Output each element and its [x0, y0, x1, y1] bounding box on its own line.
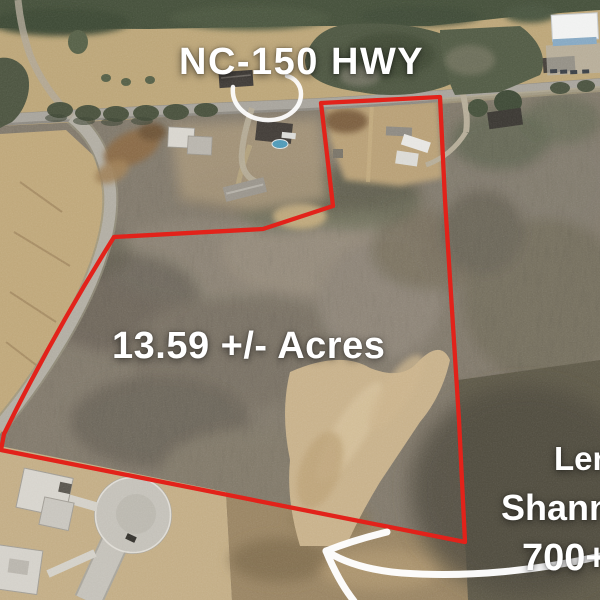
cutoff-label-2: Shanno — [501, 490, 600, 526]
cutoff-label-3: 700+ — [522, 539, 600, 577]
highway-label: NC-150 HWY — [179, 43, 424, 81]
aerial-listing-photo: NC-150 HWY 13.59 +/- Acres Len Shanno 70… — [0, 0, 600, 600]
cutoff-label-1: Len — [554, 442, 600, 475]
acreage-label: 13.59 +/- Acres — [112, 327, 385, 365]
